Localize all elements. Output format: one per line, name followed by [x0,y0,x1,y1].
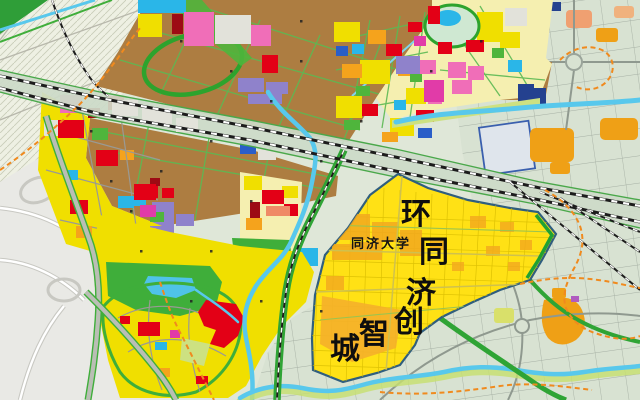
district-char-1: 环 [401,197,431,232]
outlined-existing-block [479,121,535,175]
district-char-2: 同 [419,235,449,270]
district-char-4: 创 [393,305,424,340]
tongji-university-label: 同济大学 [351,236,411,252]
roundabout-south [515,319,529,333]
district-char-6: 城 [330,332,360,367]
roundabout-northeast [566,54,582,70]
map-canvas: 同济大学 环 同 济 创 智 城 [0,0,640,400]
planning-map-screenshot: 同济大学 环 同 济 创 智 城 [0,0,640,400]
district-char-5: 智 [359,317,389,352]
